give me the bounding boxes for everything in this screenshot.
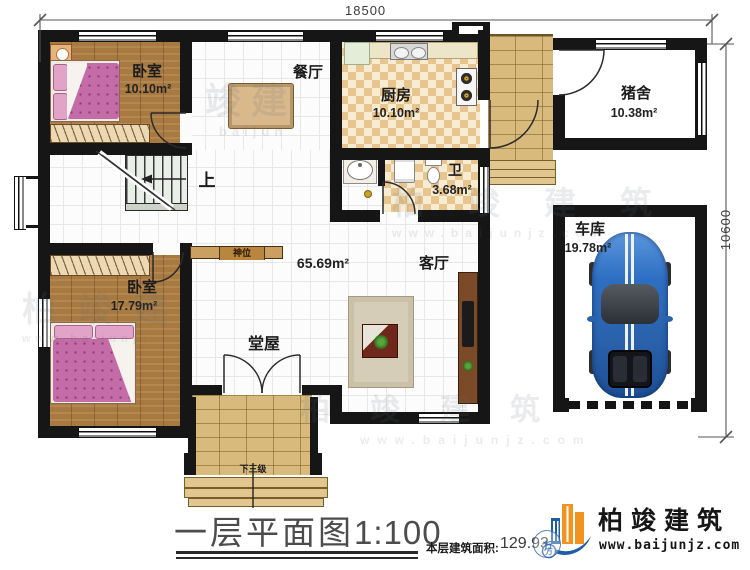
dimension-width: 18500: [345, 3, 386, 18]
room-label-garage: 车库: [575, 218, 605, 239]
room-label-hall: 堂屋: [248, 330, 280, 354]
room-area-bath: 3.68m²: [432, 183, 472, 197]
dimension-height: 10600: [718, 209, 733, 250]
stamp-char: 方: [540, 535, 554, 552]
stairs-up-label: 上: [199, 166, 216, 191]
plan-title-text: 一层平面图: [174, 514, 354, 551]
title-underline: [176, 551, 418, 554]
room-area-garage: 19.78m²: [565, 241, 612, 255]
room-label-living: 客厅: [419, 252, 449, 273]
room-label-bath: 卫: [448, 160, 462, 180]
room-area-bedroom1: 10.10m²: [125, 82, 172, 96]
floor-plan: 神位: [0, 0, 750, 570]
title-underline-thin: [176, 557, 418, 559]
room-area-hall: 65.69m²: [297, 255, 349, 271]
door-arcs: [151, 50, 604, 393]
floor-area-label: 本层建筑面积:: [426, 540, 499, 556]
room-area-kitchen: 10.10m²: [373, 106, 420, 120]
room-label-kitchen: 厨房: [381, 84, 411, 105]
room-label-bedroom1: 卧室: [132, 60, 162, 81]
room-label-bedroom2: 卧室: [127, 276, 157, 297]
logo-building-orange: [575, 512, 584, 544]
brand-name: 柏竣建筑: [598, 501, 730, 537]
room-area-pigpen: 10.38m²: [611, 106, 658, 120]
room-label-pigpen: 猪舍: [621, 82, 651, 103]
room-label-dining: 餐厅: [293, 61, 323, 82]
steps-down-label: 下三级: [239, 462, 266, 475]
plan-title: 一层平面图1:100: [174, 506, 442, 554]
brand-website: www.baijunjz.com: [599, 538, 740, 553]
room-area-bedroom2: 17.79m²: [111, 299, 158, 313]
